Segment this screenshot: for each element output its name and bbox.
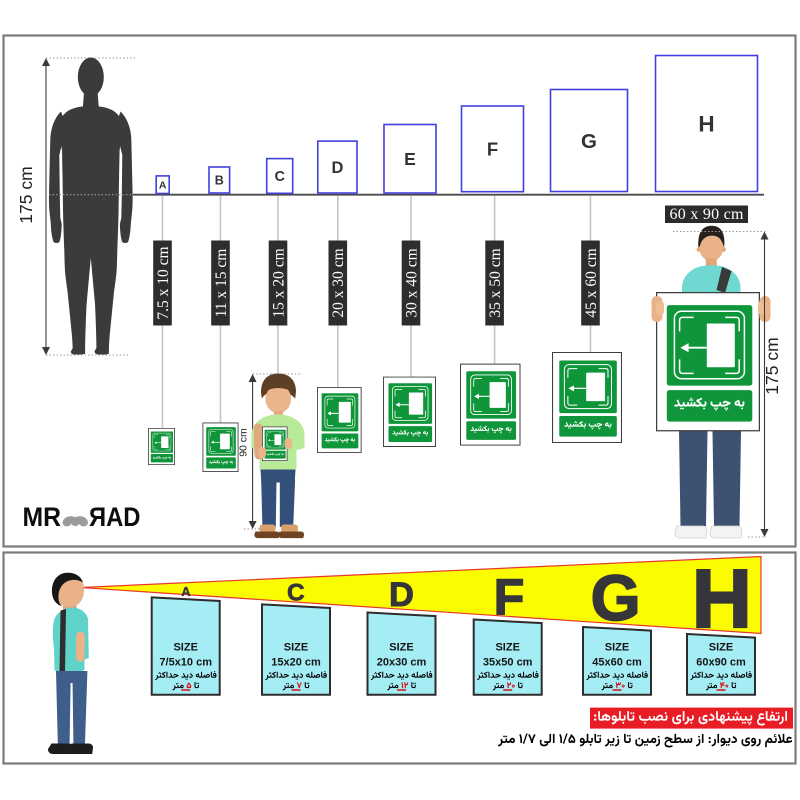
svg-text:15x20 cm: 15x20 cm [271,657,321,669]
svg-text:MR: MR [23,502,62,532]
svg-text:60 x 90 cm: 60 x 90 cm [670,206,745,223]
svg-text:ЯAD: ЯAD [89,502,141,532]
svg-text:D: D [331,159,343,177]
svg-text:SIZE: SIZE [709,642,733,654]
svg-text:SIZE: SIZE [389,642,413,654]
svg-text:15 x 20 cm: 15 x 20 cm [270,248,287,317]
svg-text:30 x 40 cm: 30 x 40 cm [403,248,420,317]
svg-text:60x90 cm: 60x90 cm [696,657,746,669]
svg-text:D: D [389,576,414,614]
svg-text:SIZE: SIZE [284,642,308,654]
svg-text:7/5x10 cm: 7/5x10 cm [159,657,212,669]
svg-text:F: F [494,569,525,625]
svg-text:11 x 15 cm: 11 x 15 cm [213,249,230,318]
svg-text:B: B [215,174,224,188]
svg-text:E: E [404,149,416,169]
svg-text:A: A [181,584,191,599]
svg-text:H: H [692,552,752,645]
svg-text:35x50 cm: 35x50 cm [483,657,533,669]
svg-text:C: C [274,169,285,185]
svg-text:175 cm: 175 cm [762,337,782,394]
svg-text:7.5 x 10 cm: 7.5 x 10 cm [155,246,172,319]
svg-text:45 x 60 cm: 45 x 60 cm [583,248,600,317]
svg-text:G: G [581,130,597,153]
svg-text:175 cm: 175 cm [16,166,36,223]
svg-text:20 x 30 cm: 20 x 30 cm [330,248,347,317]
svg-text:35 x 50 cm: 35 x 50 cm [487,248,504,317]
svg-text:C: C [287,579,305,606]
svg-text:45x60 cm: 45x60 cm [592,657,642,669]
svg-text:H: H [698,112,714,137]
svg-text:SIZE: SIZE [173,642,197,654]
svg-text:SIZE: SIZE [605,642,629,654]
svg-text:G: G [591,562,641,634]
svg-text:F: F [487,139,498,160]
svg-text:A: A [159,180,167,192]
svg-text:20x30 cm: 20x30 cm [377,657,427,669]
svg-text:90 cm: 90 cm [237,428,249,457]
svg-text:SIZE: SIZE [495,642,519,654]
